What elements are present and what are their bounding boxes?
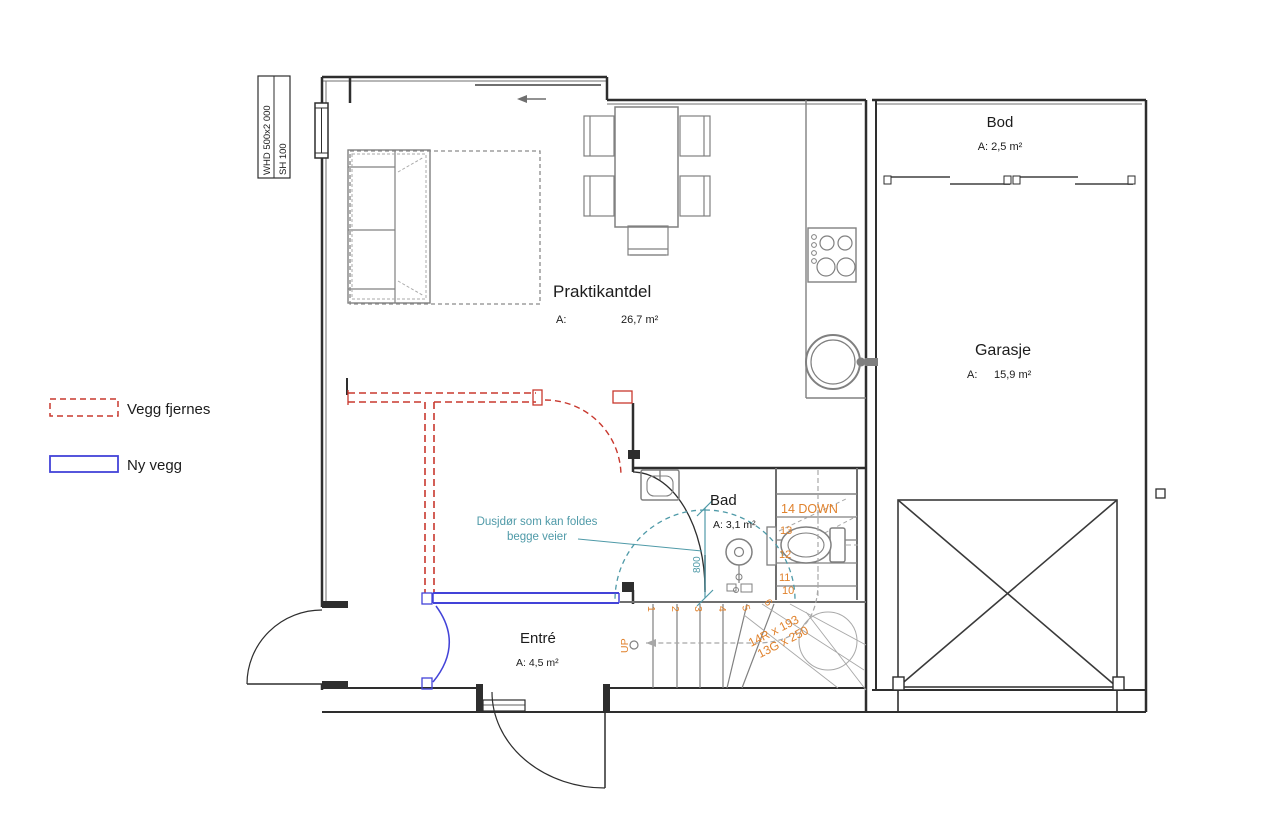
- room-area-label: A:: [967, 369, 977, 381]
- tread-number: 4: [716, 606, 728, 612]
- room-area-value: A: 4,5 m²: [516, 657, 559, 669]
- side-exit-door: [247, 610, 322, 684]
- shower-dimension: 800: [692, 500, 713, 606]
- bathroom-door: [633, 472, 705, 592]
- bod-sliding-doors: [884, 176, 1135, 184]
- tread-number: 1: [645, 606, 657, 612]
- title-block-row2: SH 100: [278, 143, 289, 175]
- room-label-bad: Bad A: 3,1 m²: [710, 492, 756, 531]
- stair-spec: 14R x 193 13G x 250: [746, 611, 811, 663]
- cooktop: [808, 228, 856, 282]
- wall-stub: [322, 601, 348, 608]
- riser-number: 12: [779, 549, 791, 561]
- sliding-terrace-door: [475, 85, 601, 103]
- removed-door-swing: [545, 400, 621, 476]
- tread-number: 3: [692, 606, 704, 612]
- room-name: Bod: [987, 114, 1014, 131]
- shower-note-line2: begge veier: [507, 531, 567, 543]
- room-area-label: A:: [556, 314, 566, 326]
- shower-note: Dusjdør som kan foldes begge veier: [477, 516, 702, 551]
- room-area-value: 15,9 m²: [994, 369, 1032, 381]
- note-leader-line: [578, 539, 702, 551]
- room-name: Entré: [520, 630, 556, 647]
- wall-jamb: [603, 684, 610, 713]
- legend-new-wall-label: Ny vegg: [127, 457, 182, 474]
- planned-furniture-outline: [350, 151, 540, 304]
- wall-jamb: [622, 582, 634, 592]
- riser-number: 10: [782, 585, 794, 597]
- wall-jamb: [476, 684, 483, 713]
- room-label-praktikantdel: Praktikantdel A: 26,7 m²: [553, 282, 659, 326]
- legend-new-wall-swatch: [50, 456, 118, 472]
- room-name: Praktikantdel: [553, 282, 651, 301]
- shower: [726, 539, 752, 593]
- new-door-swing: [433, 606, 449, 682]
- riser-number: 11: [779, 572, 790, 584]
- wall-post: [1156, 489, 1165, 498]
- legend-removed-wall-label: Vegg fjernes: [127, 401, 210, 418]
- garage-door-marker: [893, 500, 1124, 712]
- wall-jamb: [628, 450, 640, 459]
- room-name: Garasje: [975, 342, 1031, 359]
- title-block-row1: WHD 500x2 000: [262, 105, 273, 175]
- wall-stub: [322, 681, 348, 688]
- stair-down-label: 14 DOWN: [781, 502, 838, 516]
- room-label-bod: Bod A: 2,5 m²: [978, 114, 1023, 153]
- shower-note-line1: Dusjdør som kan foldes: [477, 516, 598, 528]
- tread-number: 2: [669, 606, 681, 612]
- room-area-value: A: 3,1 m²: [713, 519, 756, 531]
- shower-dimension-value: 800: [692, 556, 703, 573]
- room-label-entre: Entré A: 4,5 m²: [516, 630, 559, 669]
- room-label-garasje: Garasje A: 15,9 m²: [967, 342, 1032, 381]
- room-area-value: A: 2,5 m²: [978, 141, 1023, 153]
- removed-walls: [348, 390, 632, 593]
- legend: Vegg fjernes Ny vegg: [50, 399, 210, 474]
- dining-table: [615, 107, 678, 227]
- slide-direction-arrow: [517, 95, 527, 103]
- kitchen-counter: [806, 100, 866, 398]
- floor-plan-canvas: 800: [0, 0, 1288, 824]
- entry-threshold: [483, 700, 525, 711]
- stair-up-label: UP: [619, 638, 631, 653]
- riser-number: 13: [780, 525, 792, 537]
- room-name: Bad: [710, 492, 737, 509]
- floor-plan: 800: [0, 0, 1288, 824]
- title-block: WHD 500x2 000 SH 100: [258, 76, 290, 178]
- window: [315, 103, 328, 158]
- sofa: [348, 150, 430, 303]
- stair-start-marker: [630, 641, 638, 649]
- legend-removed-wall-swatch: [50, 399, 118, 416]
- room-area-value: 26,7 m²: [621, 314, 659, 326]
